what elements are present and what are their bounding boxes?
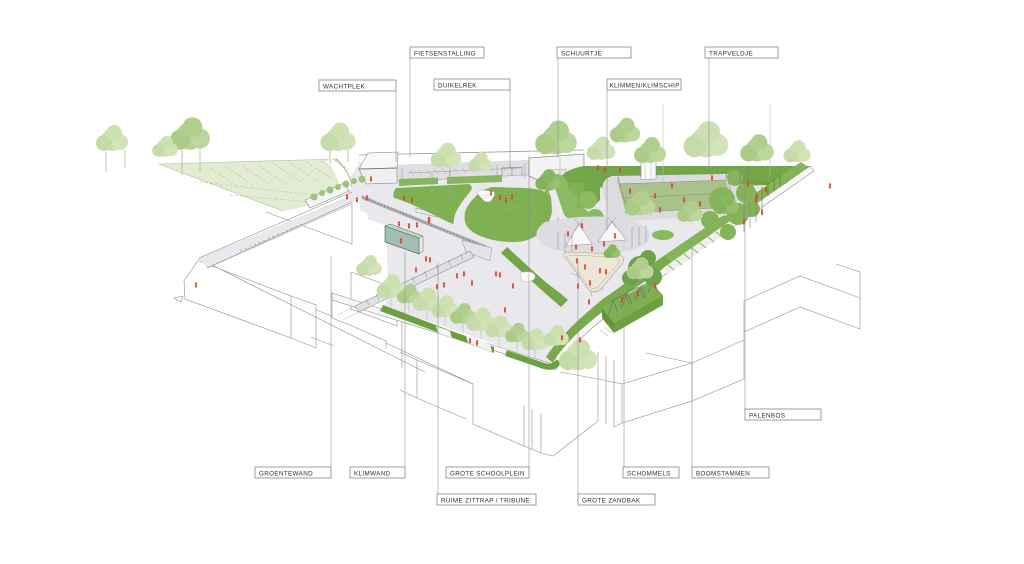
svg-text:RUIME ZITTRAP / TRIBUNE: RUIME ZITTRAP / TRIBUNE	[441, 498, 530, 505]
svg-text:DUIKELREK: DUIKELREK	[438, 83, 477, 90]
svg-text:KLIMMEN/KLIMSCHIP: KLIMMEN/KLIMSCHIP	[610, 83, 680, 90]
svg-text:TRAPVELDJE: TRAPVELDJE	[709, 51, 753, 58]
svg-text:WACHTPLEK: WACHTPLEK	[323, 84, 366, 91]
svg-text:GROENTEWAND: GROENTEWAND	[259, 471, 313, 478]
svg-text:GROTE SCHOOLPLEIN: GROTE SCHOOLPLEIN	[450, 471, 525, 478]
svg-text:FIETSENSTALLING: FIETSENSTALLING	[414, 51, 476, 58]
svg-text:SCHOMMELS: SCHOMMELS	[627, 471, 671, 478]
svg-text:KLIMWAND: KLIMWAND	[354, 471, 391, 478]
svg-text:BOOMSTAMMEN: BOOMSTAMMEN	[696, 471, 750, 478]
svg-text:SCHUURTJE: SCHUURTJE	[561, 51, 602, 58]
svg-text:PALENBOS: PALENBOS	[749, 413, 785, 420]
svg-text:GROTE ZANDBAK: GROTE ZANDBAK	[582, 498, 641, 505]
